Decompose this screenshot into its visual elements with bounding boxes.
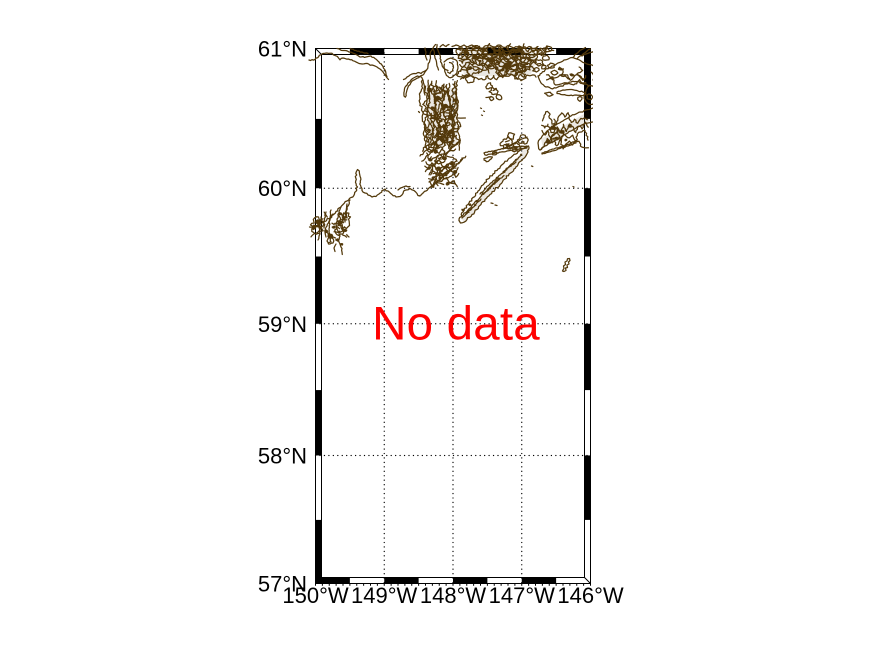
svg-text:149°W: 149°W xyxy=(351,583,418,608)
svg-text:150°W: 150°W xyxy=(282,583,349,608)
svg-text:61°N: 61°N xyxy=(258,37,307,62)
svg-text:148°W: 148°W xyxy=(420,583,487,608)
svg-text:59°N: 59°N xyxy=(258,312,307,337)
svg-text:58°N: 58°N xyxy=(258,444,307,469)
svg-text:147°W: 147°W xyxy=(489,583,556,608)
svg-text:60°N: 60°N xyxy=(258,176,307,201)
svg-text:146°W: 146°W xyxy=(557,583,624,608)
svg-text:No data: No data xyxy=(372,298,540,351)
